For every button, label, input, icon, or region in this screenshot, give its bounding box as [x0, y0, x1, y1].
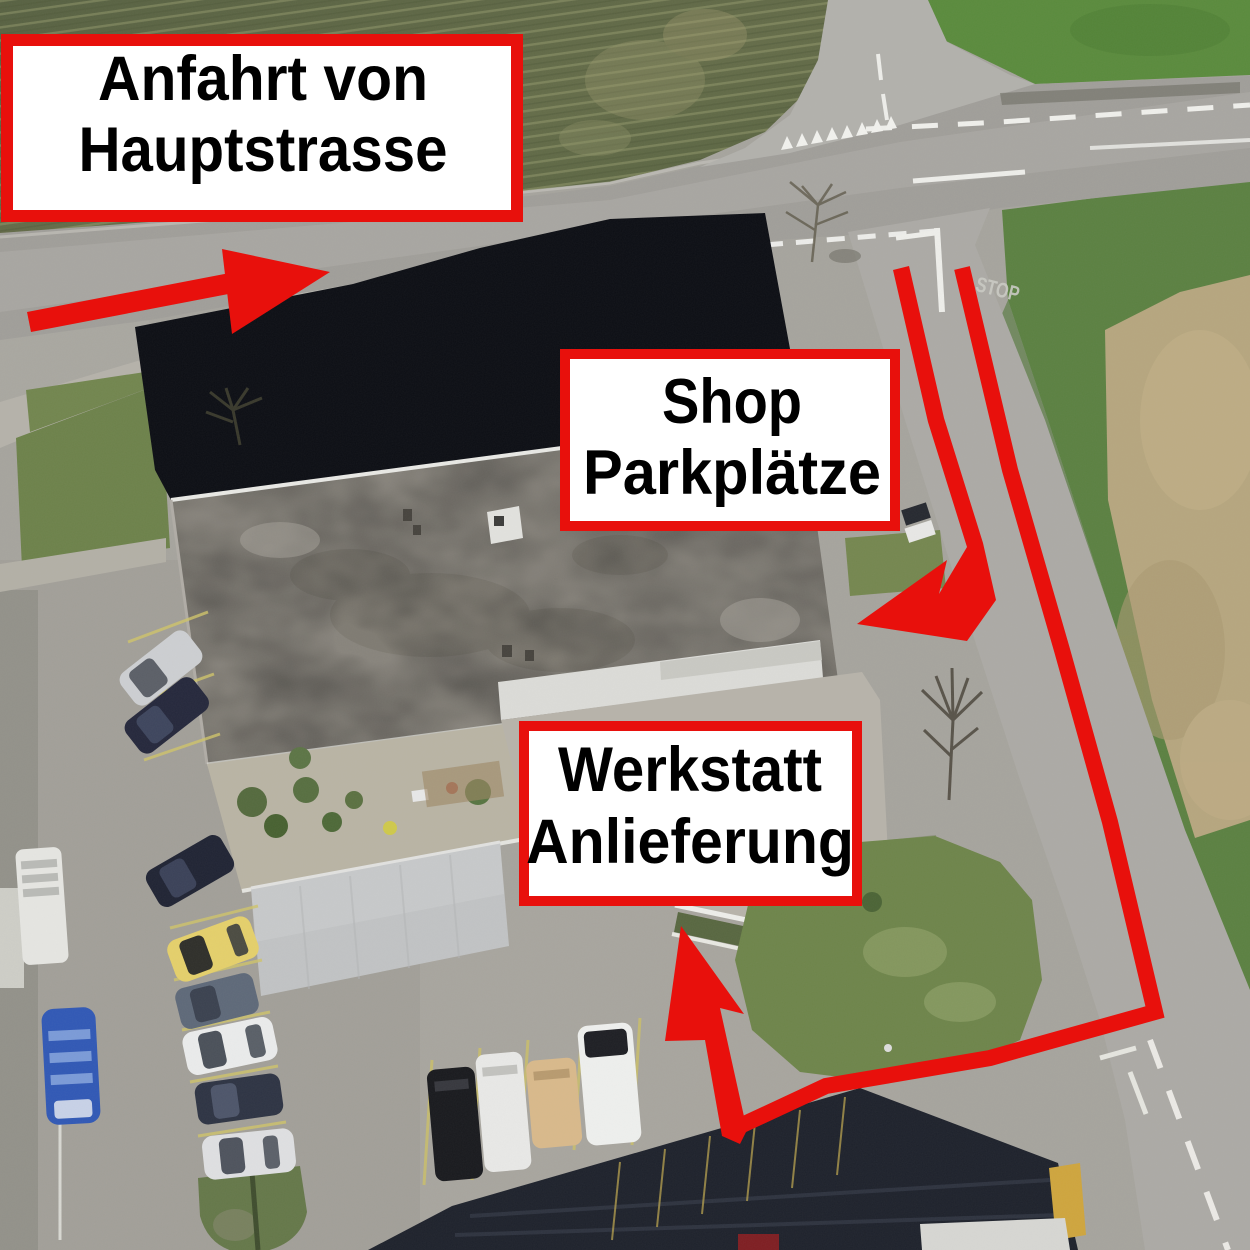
- svg-text:Anlieferung: Anlieferung: [526, 807, 854, 877]
- svg-text:Hauptstrasse: Hauptstrasse: [79, 115, 448, 185]
- svg-text:Shop: Shop: [662, 367, 802, 437]
- svg-text:Werkstatt: Werkstatt: [558, 735, 822, 805]
- svg-text:Anfahrt von: Anfahrt von: [98, 44, 428, 114]
- svg-text:Parkplätze: Parkplätze: [583, 438, 881, 508]
